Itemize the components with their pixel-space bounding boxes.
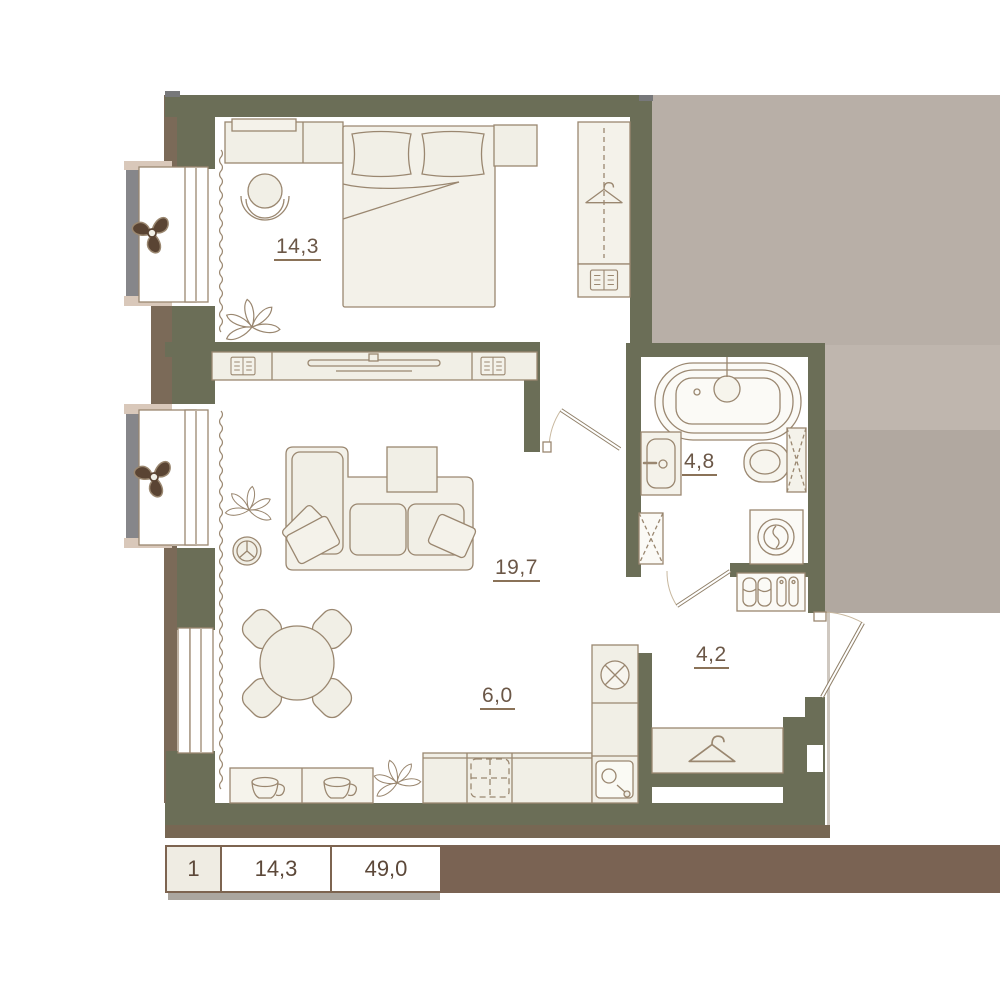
kitchen-sink-icon	[596, 761, 633, 798]
desk	[225, 119, 343, 163]
door-entry	[814, 612, 863, 697]
label-living-area: 19,7	[493, 557, 540, 582]
bathtub-icon	[655, 357, 801, 440]
door-bathroom	[667, 571, 730, 606]
legend-shadow	[168, 893, 440, 900]
plant-icon	[224, 483, 276, 523]
tv-console	[212, 352, 537, 380]
label-hallway-area: 4,2	[694, 644, 729, 669]
washing-machine-icon	[750, 510, 803, 564]
book-icon	[231, 357, 255, 375]
legend-total-area: 49,0	[330, 845, 442, 893]
kitchen-column	[592, 645, 638, 803]
legend-rooms-count: 1	[165, 845, 222, 893]
door-bedroom	[543, 410, 620, 452]
curtain	[220, 150, 223, 332]
floor-plan: 14,3 19,7 4,8 4,2 6,0 1 14,3 49,0	[0, 0, 1000, 1000]
curtain	[220, 411, 223, 789]
label-bathroom-area: 4,8	[682, 451, 717, 476]
legend-bar	[440, 845, 1000, 893]
sideboard	[230, 768, 373, 803]
shoe-rack	[737, 573, 805, 611]
book-icon	[481, 357, 505, 375]
kitchen-counter	[423, 753, 592, 803]
vent-icon	[601, 661, 629, 689]
wardrobe	[578, 122, 630, 297]
hall-closet	[652, 728, 783, 773]
window	[178, 628, 213, 753]
nightstand	[494, 125, 537, 166]
legend-living-area: 14,3	[220, 845, 332, 893]
sink-icon	[641, 432, 681, 495]
radiator-icon	[639, 513, 663, 564]
bed	[343, 126, 495, 307]
label-kitchen-area: 6,0	[480, 685, 515, 710]
coffee-table	[387, 447, 437, 492]
plant-icon	[219, 295, 281, 343]
plant-icon	[367, 753, 423, 799]
label-bedroom-area: 14,3	[274, 236, 321, 261]
sofa	[281, 447, 477, 570]
book-icon	[591, 270, 618, 290]
desk-chair	[241, 174, 289, 220]
dining-set	[238, 605, 356, 722]
pouf	[233, 537, 261, 565]
